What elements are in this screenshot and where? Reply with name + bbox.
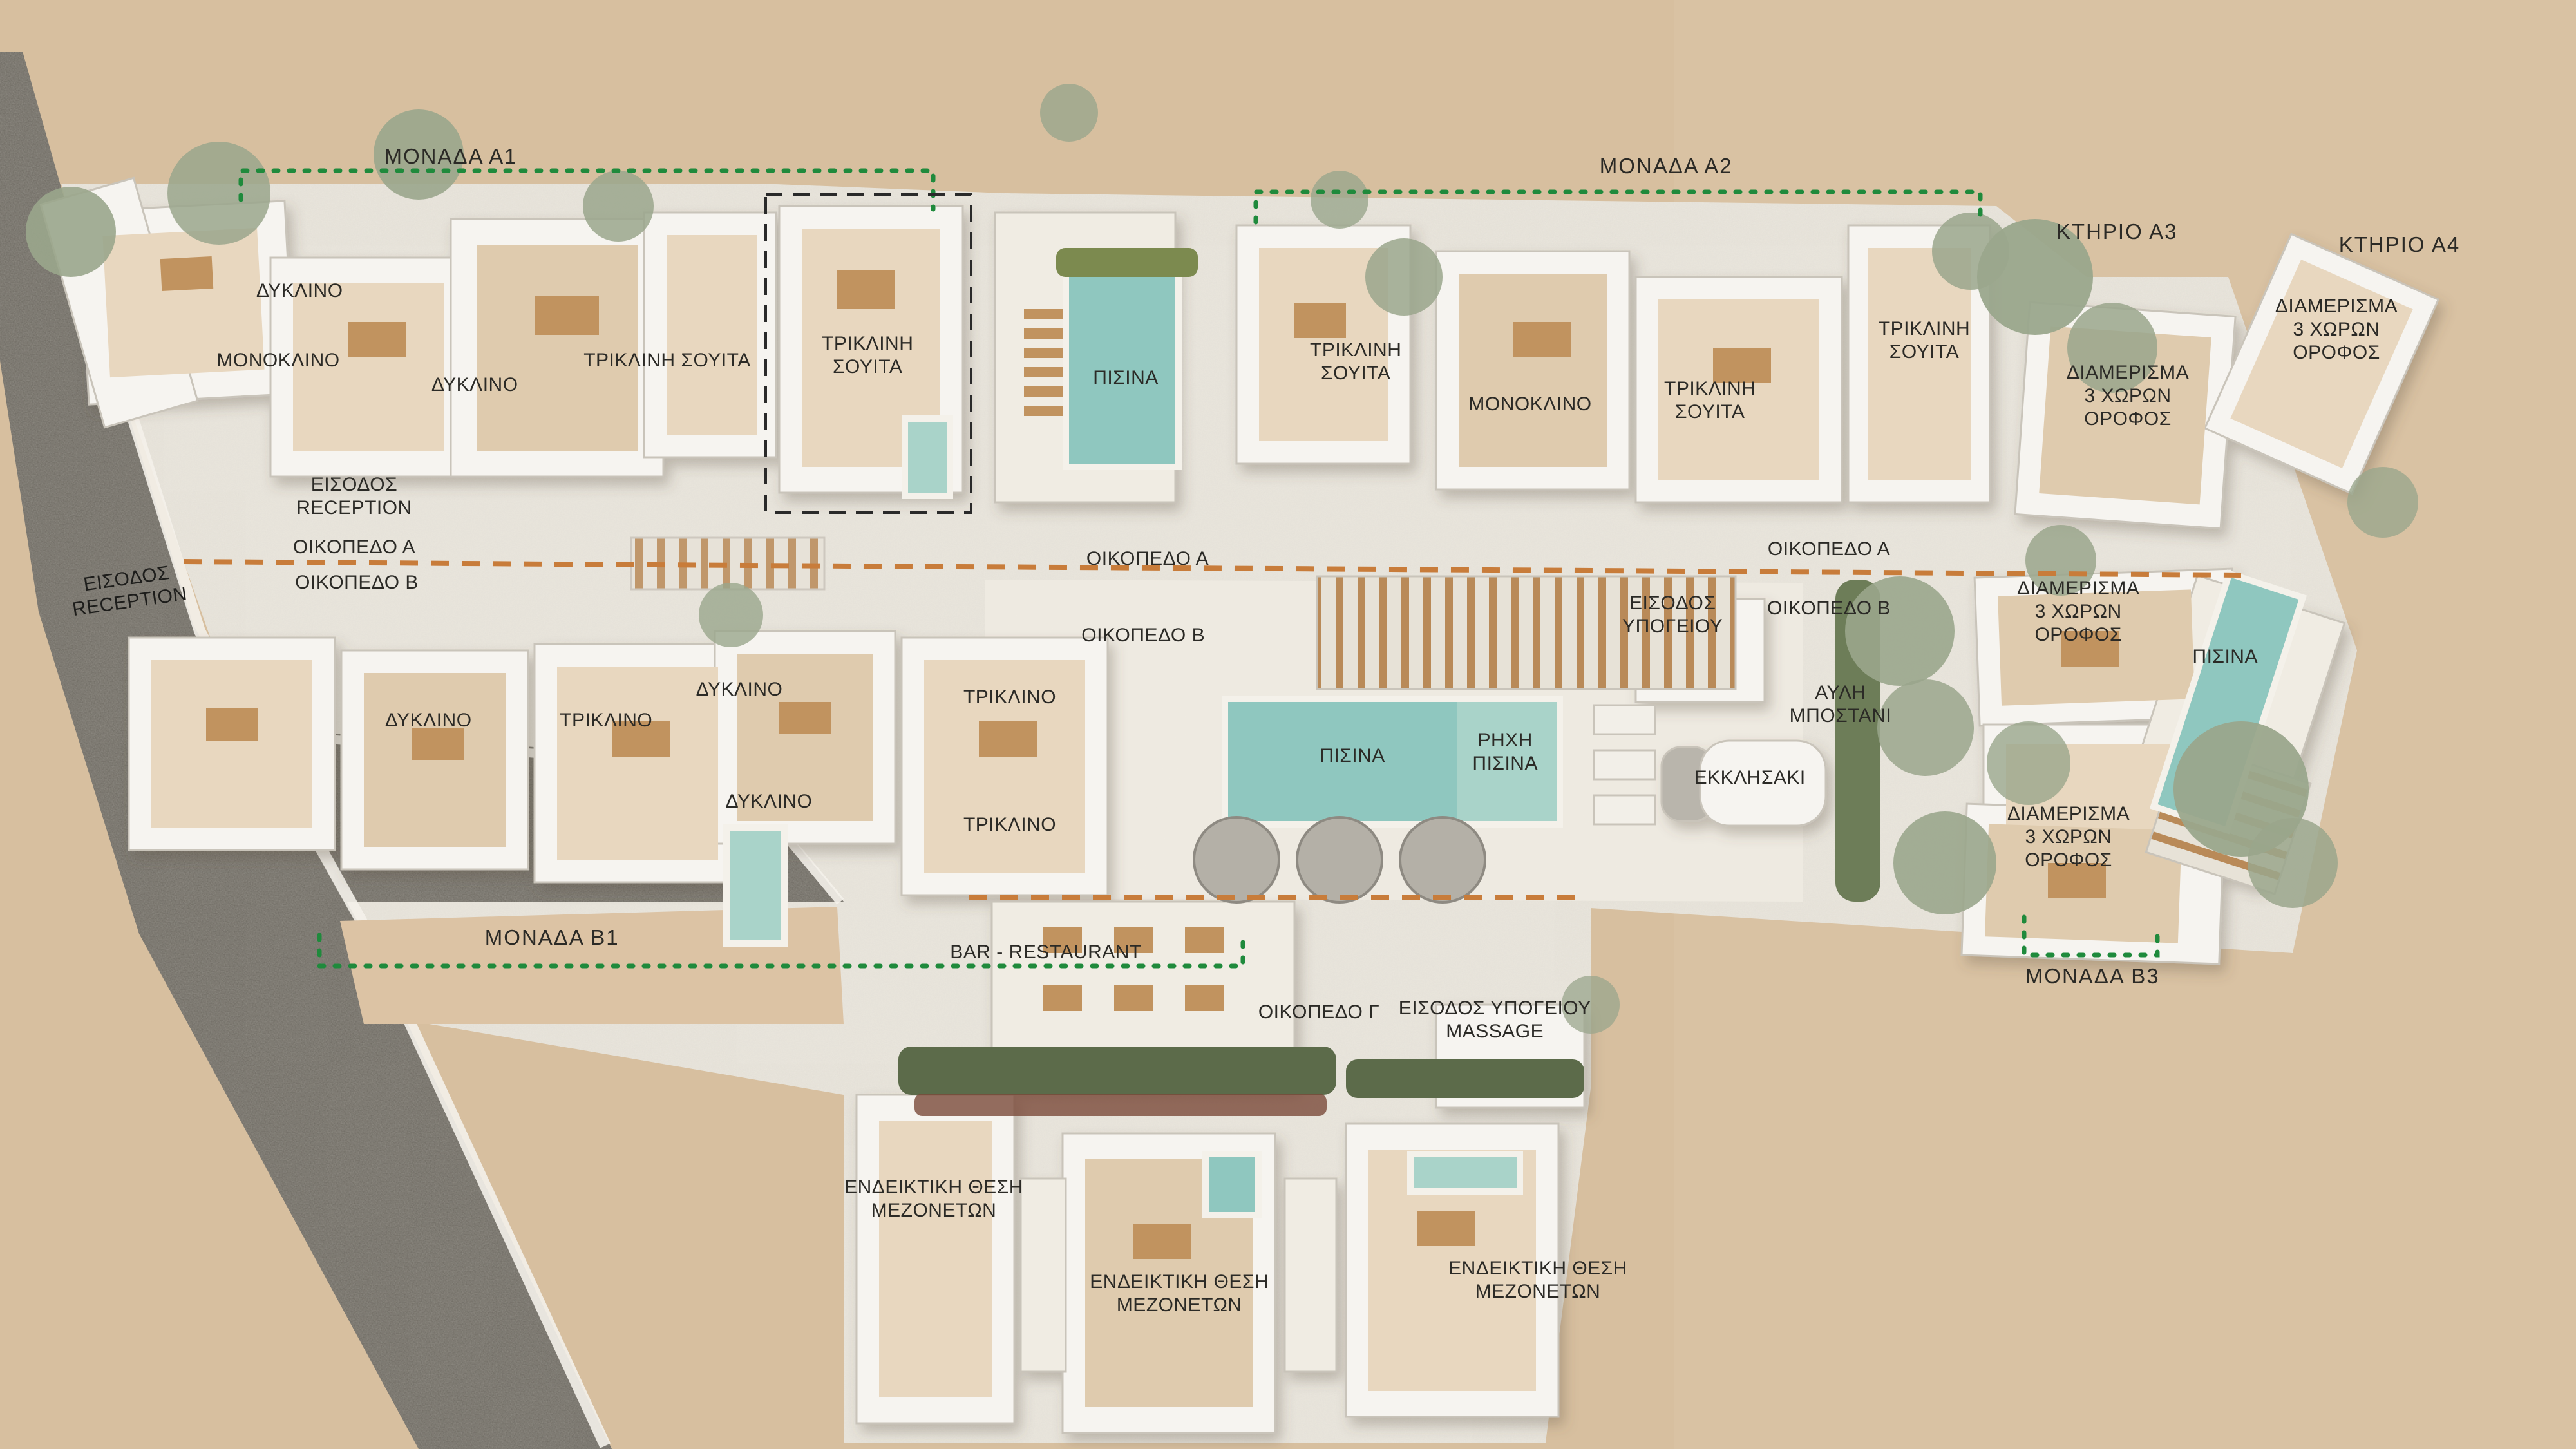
plan-label: ΡΗΧΗ ΠΙΣΙΝΑ [1472, 729, 1538, 775]
plan-label: ΟΙΚΟΠΕΔΟ Α [1086, 547, 1209, 571]
plan-label: ΤΡΙΚΛΙΝΗ ΣΟΥΙΤΑ [1664, 377, 1756, 424]
plan-label: ΔΥΚΛΙΝΟ [431, 374, 518, 397]
plan-label: BAR - RESTAURANT [950, 941, 1141, 964]
labels-layer: ΜΟΝΑΔΑ Α1ΜΟΝΑΔΑ Α2ΚΤΗΡΙΟ Α3ΚΤΗΡΙΟ Α4ΜΟΝΑ… [0, 0, 2576, 1449]
plan-label: ΕΙΣΟΔΟΣ ΥΠΟΓΕΙΟΥ MASSAGE [1399, 997, 1591, 1043]
plan-label: ΜΟΝΑΔΑ Α1 [384, 144, 518, 169]
plan-label: ΔΙΑΜΕΡΙΣΜΑ 3 ΧΩΡΩΝ ΟΡΟΦΟΣ [2067, 361, 2189, 431]
plan-label: ΔΥΚΛΙΝΟ [256, 279, 343, 303]
plan-label: ΕΝΔΕΙΚΤΙΚΗ ΘΕΣΗ ΜΕΖΟΝΕΤΩΝ [1448, 1257, 1627, 1303]
plan-label: ΠΙΣΙΝΑ [2192, 645, 2258, 668]
plan-label: ΔΙΑΜΕΡΙΣΜΑ 3 ΧΩΡΩΝ ΟΡΟΦΟΣ [2275, 295, 2398, 365]
plan-label: ΕΙΣΟΔΟΣ ΥΠΟΓΕΙΟΥ [1622, 592, 1723, 638]
plan-label: ΔΙΑΜΕΡΙΣΜΑ 3 ΧΩΡΩΝ ΟΡΟΦΟΣ [2007, 802, 2130, 872]
plan-label: ΑΥΛΗ ΜΠΟΣΤΑΝΙ [1790, 681, 1892, 728]
plan-label: ΟΙΚΟΠΕΔΟ Α [1768, 538, 1890, 561]
plan-label: ΤΡΙΚΛΙΝΟ [963, 813, 1056, 837]
plan-label: ΔΥΚΛΙΝΟ [385, 709, 472, 732]
plan-label: ΚΤΗΡΙΟ Α3 [2056, 219, 2178, 245]
plan-label: ΜΟΝΑΔΑ Α2 [1600, 153, 1733, 179]
plan-label: ΔΥΚΛΙΝΟ [726, 790, 813, 813]
plan-label: ΟΙΚΟΠΕΔΟ Β [295, 571, 419, 594]
plan-label: ΤΡΙΚΛΙΝΗ ΣΟΥΙΤΑ [583, 349, 751, 372]
plan-label: ΤΡΙΚΛΙΝΟ [963, 686, 1056, 709]
plan-label: ΠΙΣΙΝΑ [1320, 744, 1385, 768]
plan-label: ΚΤΗΡΙΟ Α4 [2339, 232, 2461, 258]
plan-label: ΟΙΚΟΠΕΔΟ Β [1767, 597, 1891, 620]
plan-label: ΟΙΚΟΠΕΔΟ Γ [1258, 1001, 1379, 1024]
plan-label: ΤΡΙΚΛΙΝΗ ΣΟΥΙΤΑ [1879, 317, 1970, 364]
plan-label: ΕΝΔΕΙΚΤΙΚΗ ΘΕΣΗ ΜΕΖΟΝΕΤΩΝ [844, 1176, 1023, 1222]
plan-label: ΤΡΙΚΛΙΝΗ ΣΟΥΙΤΑ [1310, 339, 1401, 385]
site-plan-canvas: ΜΟΝΑΔΑ Α1ΜΟΝΑΔΑ Α2ΚΤΗΡΙΟ Α3ΚΤΗΡΙΟ Α4ΜΟΝΑ… [0, 0, 2576, 1449]
plan-label: ΕΙΣΟΔΟΣ RECEPTION [296, 473, 412, 520]
plan-label: ΟΙΚΟΠΕΔΟ Β [1081, 624, 1205, 647]
plan-label: ΤΡΙΚΛΙΝΗ ΣΟΥΙΤΑ [822, 332, 913, 379]
plan-label: ΕΚΚΛΗΣΑΚΙ [1694, 766, 1806, 790]
plan-label: ΜΟΝΑΔΑ Β3 [2025, 963, 2160, 989]
plan-label: ΜΟΝΟΚΛΙΝΟ [216, 349, 339, 372]
plan-label: ΕΙΣΟΔΟΣ RECEPTION [68, 560, 189, 621]
plan-label: ΠΙΣΙΝΑ [1093, 366, 1159, 390]
plan-label: ΤΡΙΚΛΙΝΟ [560, 709, 652, 732]
plan-label: ΜΟΝΟΚΛΙΝΟ [1468, 393, 1591, 416]
plan-label: ΔΥΚΛΙΝΟ [696, 678, 783, 701]
plan-label: ΜΟΝΑΔΑ Β1 [485, 925, 620, 951]
plan-label: ΕΝΔΕΙΚΤΙΚΗ ΘΕΣΗ ΜΕΖΟΝΕΤΩΝ [1090, 1271, 1269, 1317]
plan-label: ΔΙΑΜΕΡΙΣΜΑ 3 ΧΩΡΩΝ ΟΡΟΦΟΣ [2017, 577, 2139, 647]
plan-label: ΟΙΚΟΠΕΔΟ Α [293, 536, 415, 559]
